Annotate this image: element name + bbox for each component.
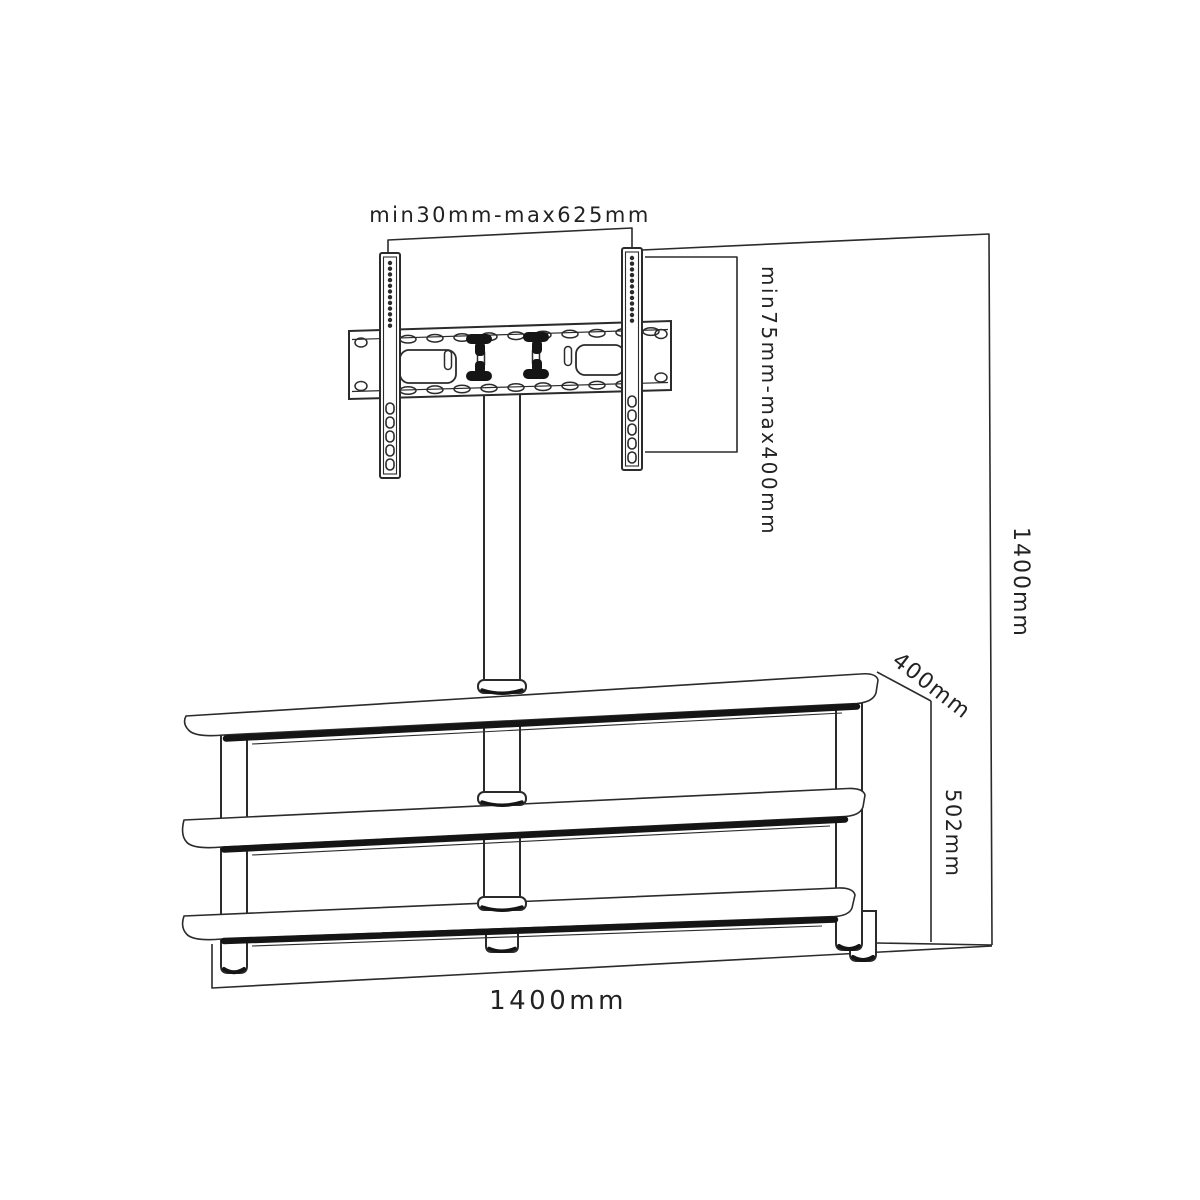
top-shelf: [185, 674, 878, 736]
label-overall-height: 1400mm: [1008, 527, 1033, 638]
label-stand-height: 502mm: [941, 789, 965, 878]
bracket-rail-left: [380, 253, 400, 478]
tv-stand-dimension-diagram: min30mm-max625mm min75mm-max400mm 1400mm…: [0, 0, 1200, 1200]
label-bracket-span: min30mm-max625mm: [369, 203, 651, 227]
label-vesa-height: min75mm-max400mm: [757, 266, 781, 536]
dim-line-overall-height: [642, 234, 992, 945]
column-upper-segment: [484, 393, 520, 681]
diagram-page: min30mm-max625mm min75mm-max400mm 1400mm…: [0, 0, 1200, 1200]
label-stand-width: 1400mm: [489, 986, 627, 1016]
leg-feet-shading: [224, 946, 873, 972]
rail-right-slots: [628, 396, 636, 463]
dim-line-bottom-connector: [876, 943, 992, 945]
dim-line-bracket-span: [388, 228, 632, 254]
support-column: [484, 393, 520, 952]
bracket-rail-right: [622, 248, 642, 470]
rail-left-slots: [386, 403, 394, 470]
